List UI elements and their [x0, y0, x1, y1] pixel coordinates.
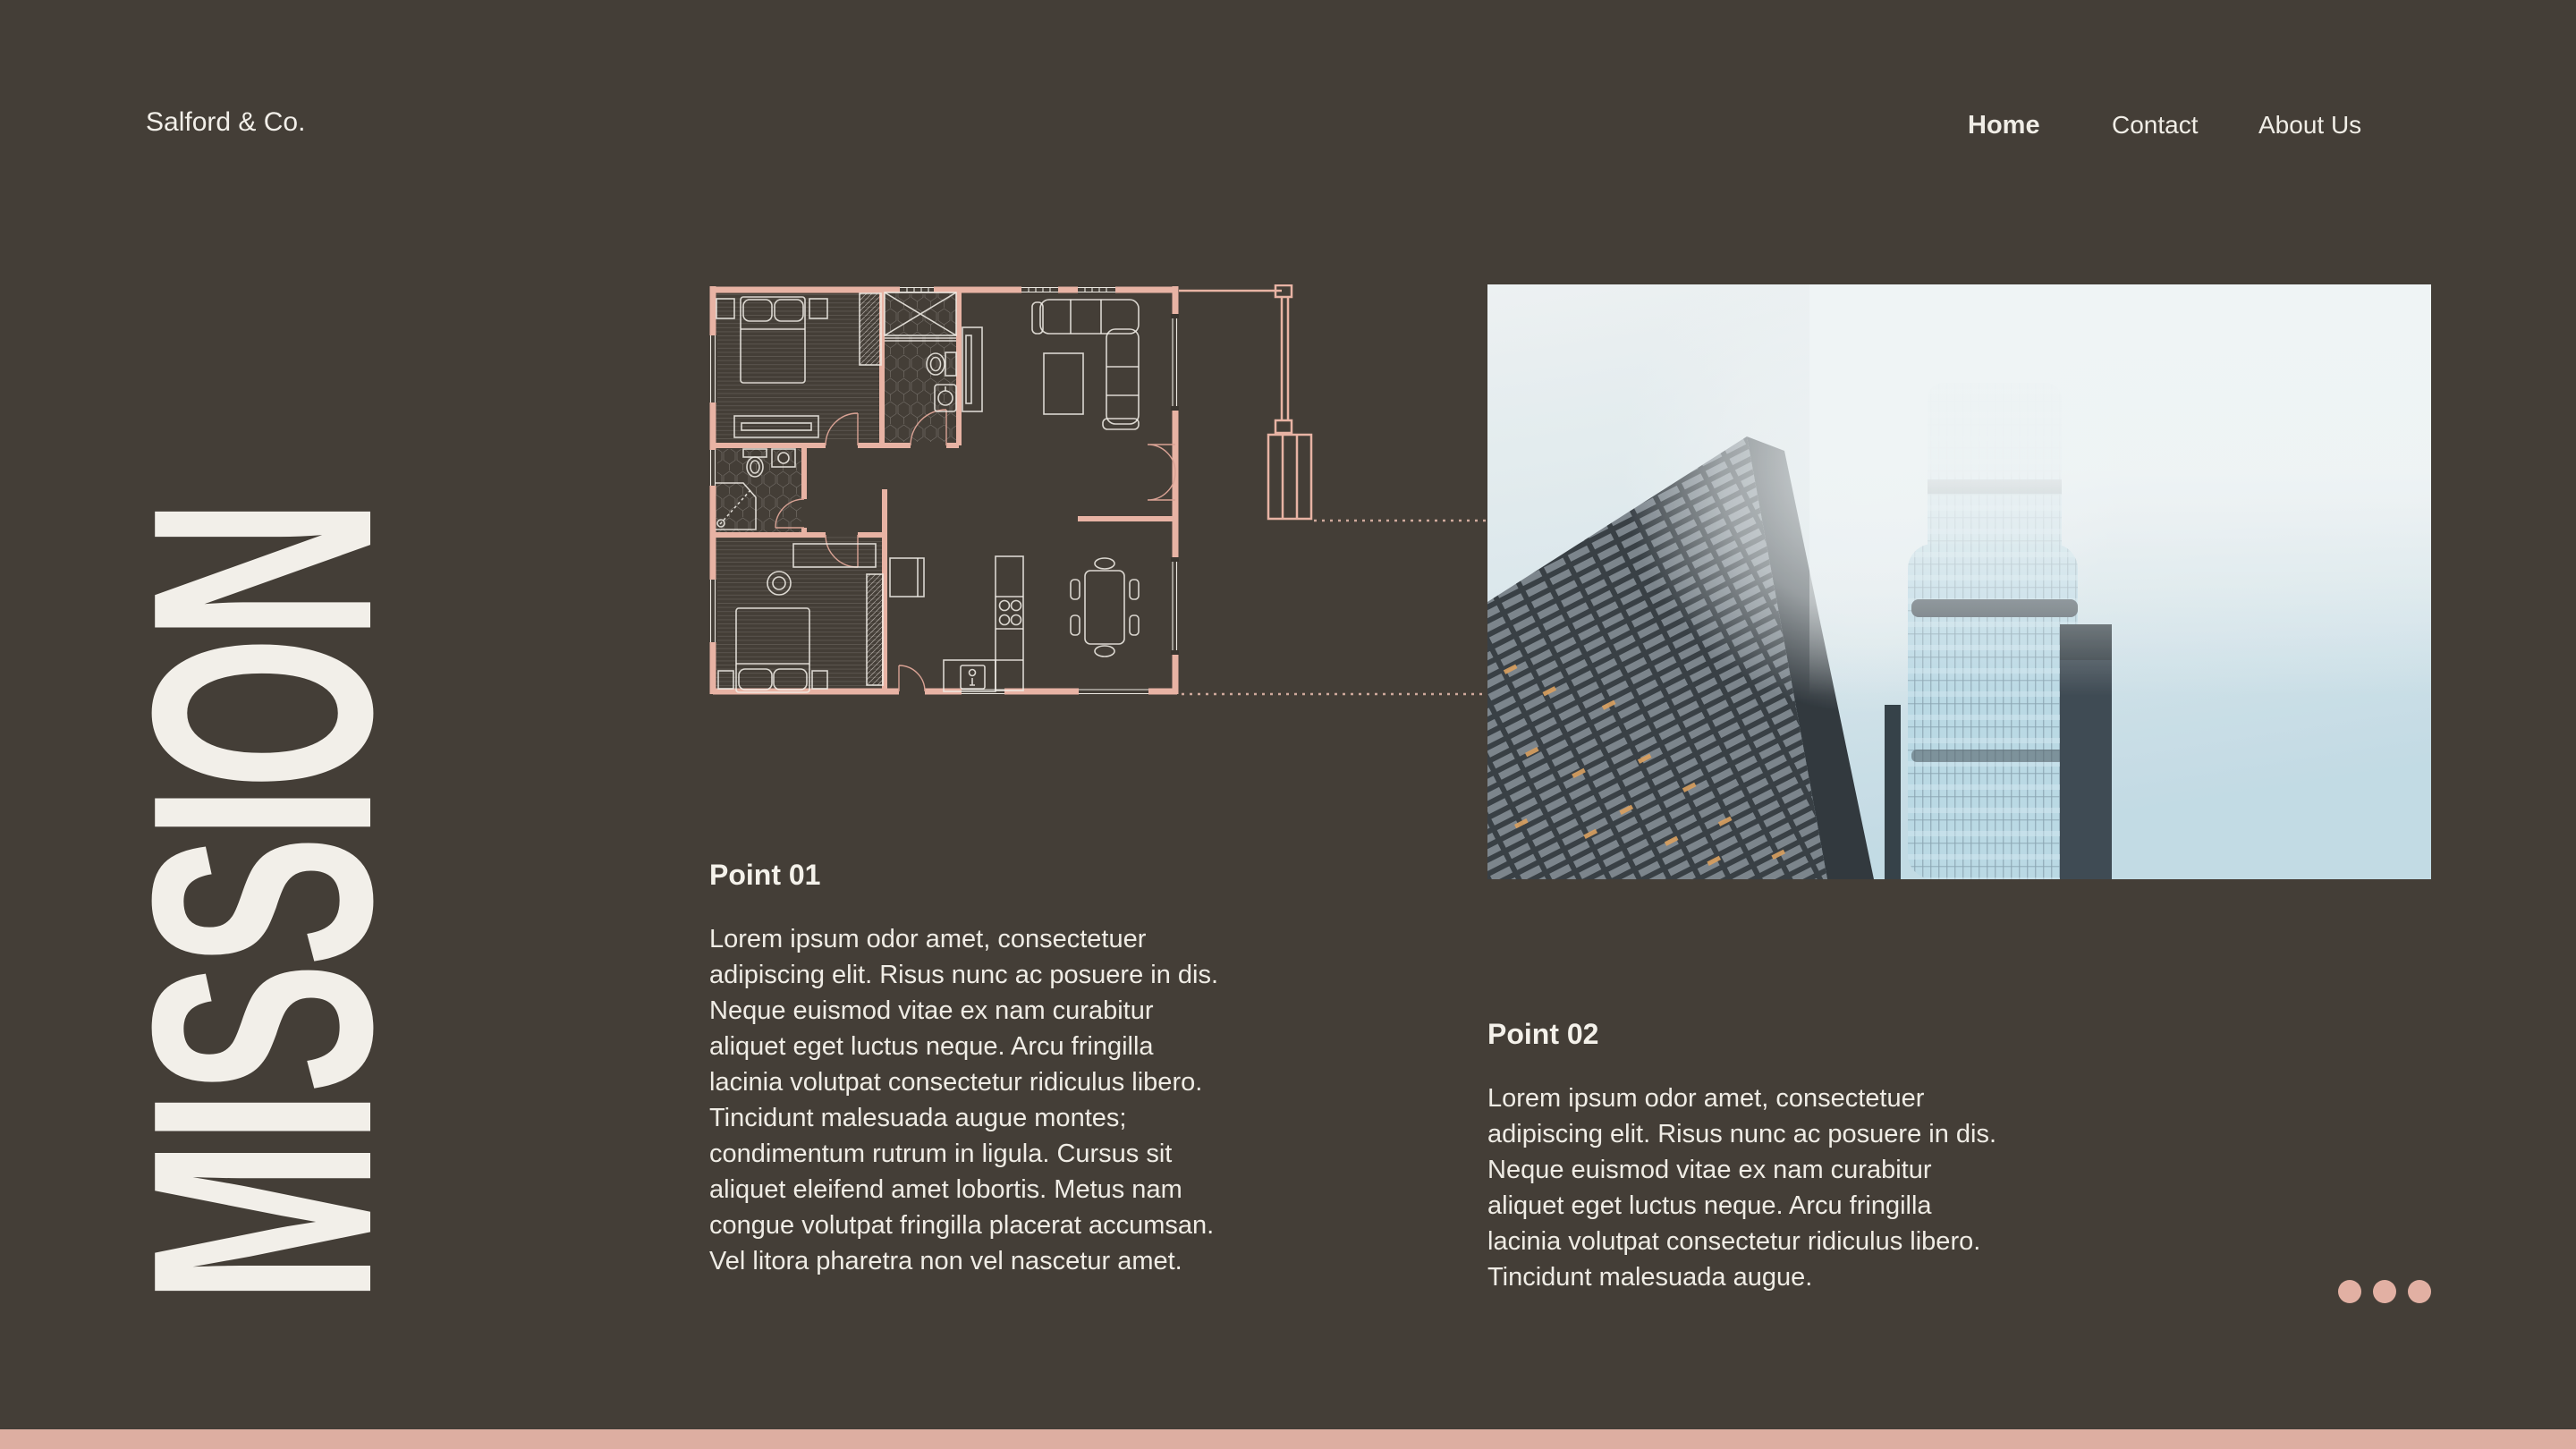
point-02-heading: Point 02 — [1487, 1016, 2149, 1052]
nav-item-about-us[interactable]: About Us — [2258, 111, 2361, 140]
nav-item-home[interactable]: Home — [1968, 111, 2040, 140]
brand-logo-text: Salford & Co. — [146, 107, 305, 138]
page-title-mission: MISSION — [106, 503, 419, 1304]
point-01-body: Lorem ipsum odor amet, consectetuer adip… — [709, 921, 1371, 1279]
bottom-accent-bar — [0, 1429, 2576, 1449]
floor-plan-figure — [709, 284, 1496, 723]
carousel-dot-1[interactable] — [2338, 1280, 2361, 1303]
section-point-01: Point 01 Lorem ipsum odor amet, consecte… — [709, 857, 1371, 1279]
nav-item-contact[interactable]: Contact — [2112, 111, 2199, 140]
section-point-02: Point 02 Lorem ipsum odor amet, consecte… — [1487, 1016, 2149, 1295]
skyscraper-photo — [1487, 284, 2431, 879]
point-01-heading: Point 01 — [709, 857, 1371, 893]
carousel-dots — [2338, 1280, 2431, 1303]
carousel-dot-3[interactable] — [2408, 1280, 2431, 1303]
carousel-dot-2[interactable] — [2373, 1280, 2396, 1303]
point-02-body: Lorem ipsum odor amet, consectetuer adip… — [1487, 1080, 2149, 1295]
